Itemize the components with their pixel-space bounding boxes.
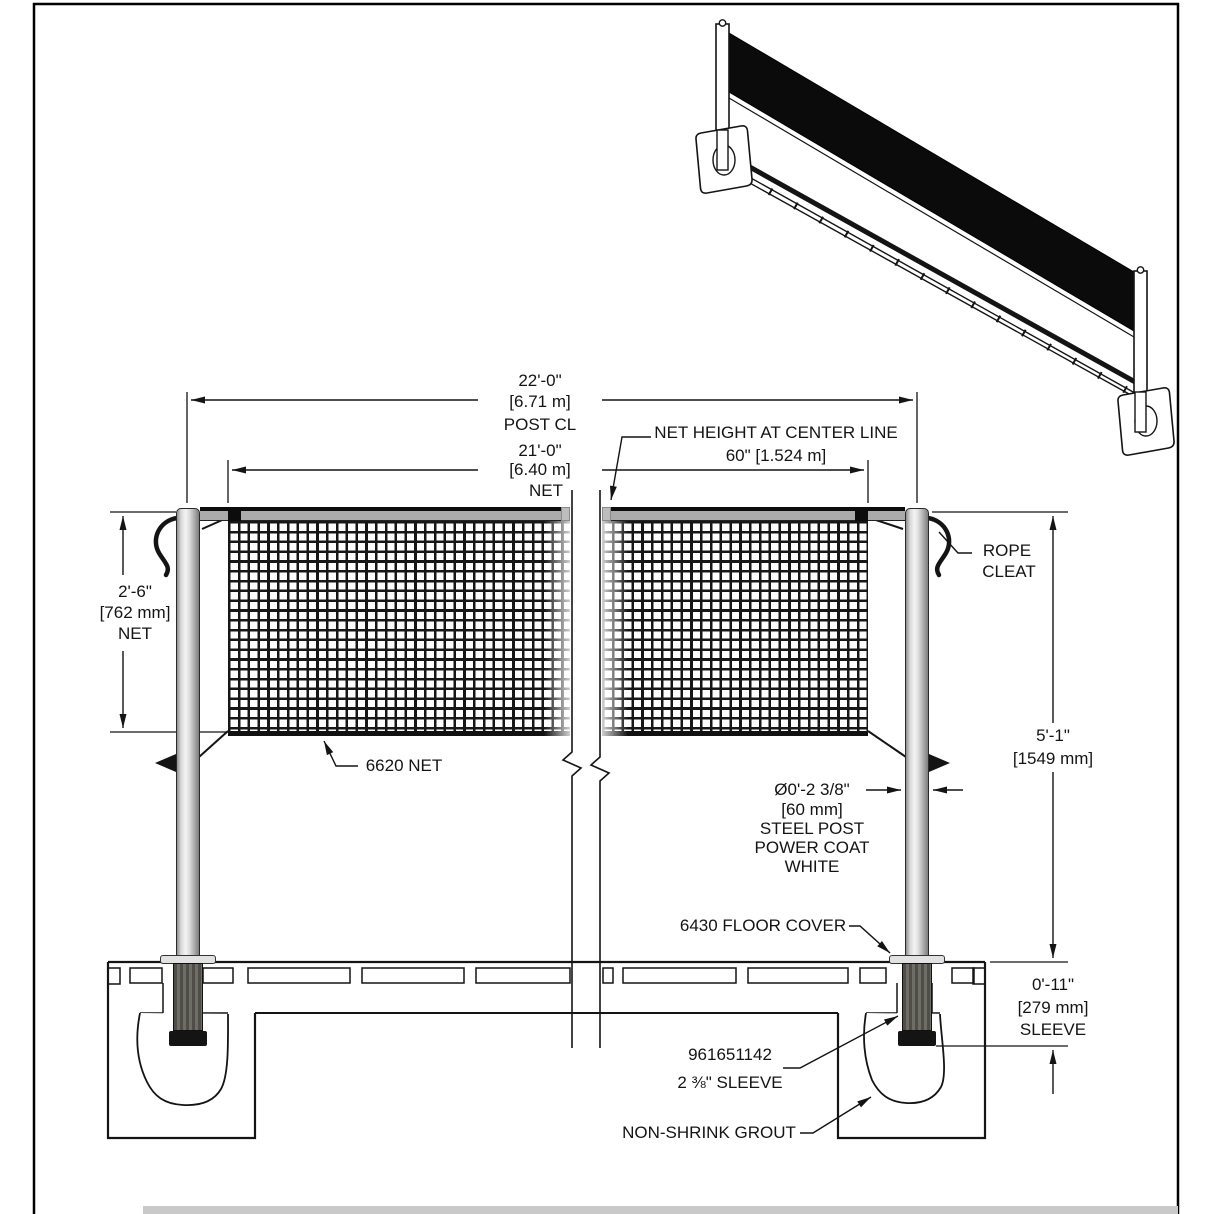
net-bottom-tape-right [602, 731, 868, 736]
net-bottom-tape-left [228, 731, 570, 736]
dim-sleeve-depth-label: SLEEVE [1017, 1020, 1089, 1040]
net-band-break-cap-right [602, 507, 611, 521]
post-spec-line1: STEEL POST [757, 819, 867, 839]
ground-sleeve-right [902, 963, 932, 1031]
leader-net-height [611, 437, 651, 500]
leader-rope-cleat [939, 532, 972, 553]
steel-post-left [176, 508, 200, 957]
tie-bottom-right [868, 731, 906, 757]
post-spec-line2: POWER COAT [752, 838, 873, 858]
post-diameter-value: Ø0'-2 3/8" [771, 780, 852, 800]
dim-sleeve-depth-metric: [279 mm] [1015, 998, 1092, 1018]
rope-cleat-left-icon [156, 518, 177, 575]
floor-structure [108, 962, 985, 1138]
dim-post-height-metric: [1549 mm] [1010, 749, 1096, 769]
rope-cleat-right-icon [928, 518, 949, 575]
sleeve-cap-left [169, 1031, 207, 1046]
net-top-band-left [200, 507, 561, 521]
dim-net-width-feet: 21'-0" [515, 441, 564, 461]
leader-floor-cover [849, 926, 890, 953]
net-mesh-left-panel [228, 521, 570, 731]
isometric-net-assembly [696, 20, 1174, 455]
rope-cleat-label-line1: ROPE [980, 541, 1034, 561]
title-block-strip [143, 1206, 1178, 1214]
rope-cleat-label-line2: CLEAT [979, 562, 1039, 582]
tie-bottom-left [199, 731, 228, 757]
dim-net-depth-metric: [762 mm] [97, 603, 174, 623]
dim-post-cl-label: POST CL [501, 415, 579, 435]
drawing-sheet: 22'-0" [6.71 m] POST CL 21'-0" [6.40 m] … [0, 0, 1214, 1214]
leader-6620-net [324, 741, 358, 766]
sleeve-cap-right [898, 1031, 936, 1046]
dim-net-width-label: NET [526, 481, 566, 501]
dim-net-width-metric: [6.40 m] [506, 460, 573, 480]
leader-grout [800, 1097, 871, 1133]
net-model-label: 6620 NET [363, 756, 446, 776]
net-height-callout-value: 60" [1.524 m] [723, 446, 830, 466]
steel-post-right [905, 508, 929, 957]
sleeve-size-label: 2 ⅜" SLEEVE [674, 1073, 785, 1093]
ground-sleeve-left [173, 963, 203, 1031]
net-height-callout-title: NET HEIGHT AT CENTER LINE [651, 423, 900, 443]
net-band-break-cap-left [561, 507, 570, 521]
lower-hook-left-icon [155, 754, 176, 772]
iso-post-right [1134, 271, 1147, 401]
net-band-end-block-left [228, 508, 241, 521]
sleeve-part-number: 961651142 [685, 1045, 775, 1065]
dim-sleeve-depth-feet: 0'-11" [1029, 975, 1077, 995]
lower-hook-right-icon [929, 754, 950, 772]
net-band-end-block-right [855, 508, 868, 521]
iso-net-bottom-cable [729, 98, 1134, 337]
floor-cover-label: 6430 FLOOR COVER [677, 916, 849, 936]
grout-label: NON-SHRINK GROUT [619, 1123, 799, 1143]
dim-net-depth-label: NET [115, 624, 155, 644]
dim-post-height-feet: 5'-1" [1033, 726, 1073, 746]
iso-net-band [729, 33, 1134, 331]
post-spec-line3: WHITE [782, 857, 843, 877]
net-mesh-right-panel [602, 521, 868, 731]
dim-post-cl-metric: [6.71 m] [506, 392, 573, 412]
dim-post-cl-feet: 22'-0" [515, 371, 564, 391]
dim-net-depth-feet: 2'-6" [115, 582, 155, 602]
post-diameter-metric: [60 mm] [778, 800, 845, 820]
